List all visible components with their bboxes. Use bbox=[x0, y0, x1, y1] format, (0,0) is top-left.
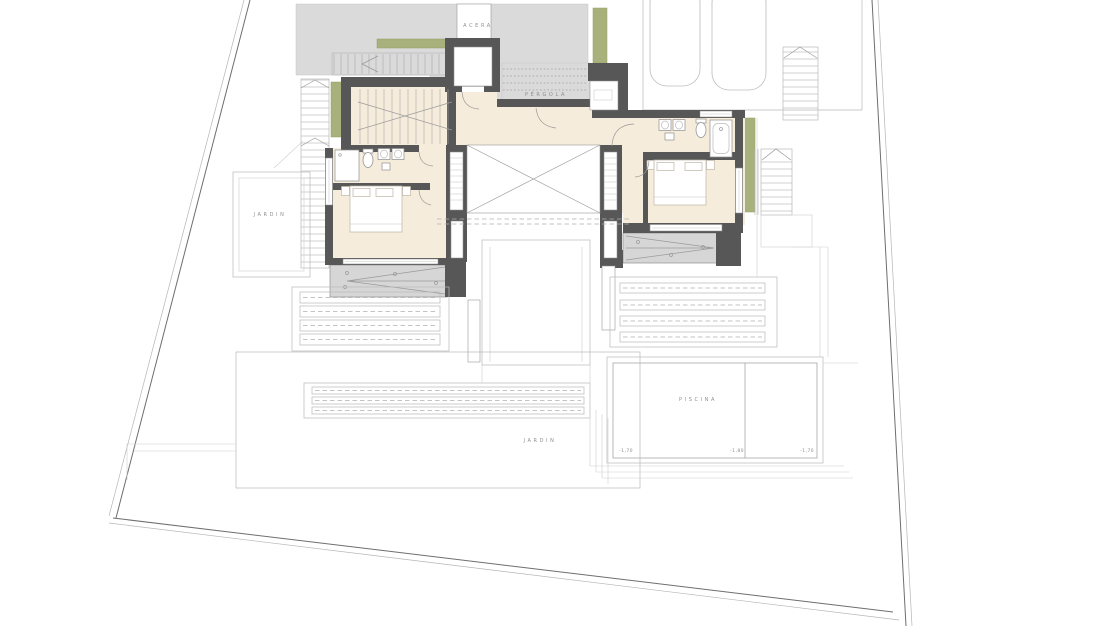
nightstand bbox=[707, 161, 715, 170]
vanity-left bbox=[382, 163, 390, 170]
bedroom-left-furniture bbox=[342, 186, 411, 232]
planter-entry bbox=[593, 8, 607, 63]
court-wall-right bbox=[602, 266, 615, 330]
sidewalk-label: ACERA bbox=[463, 23, 493, 29]
pool: PISCINA -1,70 -1,80 -1,70 bbox=[607, 357, 823, 463]
entry-walkway bbox=[457, 4, 491, 40]
deck-lower bbox=[304, 383, 590, 418]
stair-right-a-outline bbox=[783, 47, 818, 120]
stair-landing bbox=[761, 215, 812, 247]
courtyard bbox=[468, 240, 615, 383]
pillow bbox=[353, 189, 370, 197]
nightstand bbox=[403, 187, 411, 196]
driveway bbox=[643, 0, 862, 110]
car-outline-2 bbox=[712, 0, 766, 90]
entry-tower bbox=[445, 38, 500, 92]
pergola-label: PÉRGOLA bbox=[525, 90, 567, 98]
courtyard-outline bbox=[482, 240, 590, 365]
pool-deck-outline bbox=[607, 357, 823, 463]
deck-right bbox=[610, 277, 777, 347]
court-wall-left bbox=[468, 300, 480, 362]
toilet-left bbox=[363, 153, 373, 168]
stair-left-outline bbox=[301, 79, 329, 268]
pillar-right bbox=[716, 228, 741, 266]
entry-hall-room bbox=[454, 47, 492, 86]
nightstand bbox=[647, 161, 654, 170]
entry-volume bbox=[588, 63, 628, 114]
window-right-bedroom-slider bbox=[650, 225, 722, 232]
entry-door-gap bbox=[462, 87, 484, 93]
window-void-right bbox=[604, 152, 617, 210]
window-court-left bbox=[451, 221, 463, 258]
bedroom-right-furniture bbox=[647, 160, 715, 205]
pergola: PÉRGOLA bbox=[502, 63, 590, 101]
pool-level-left: -1,70 bbox=[619, 448, 633, 454]
pillow bbox=[685, 163, 702, 171]
garden-lower-label: JARDIN bbox=[523, 438, 557, 444]
planter-top bbox=[377, 39, 447, 48]
pool-label: PISCINA bbox=[679, 397, 717, 403]
pool-basin bbox=[613, 363, 817, 458]
pillar-left bbox=[445, 262, 466, 297]
pillow bbox=[657, 163, 674, 171]
stair-right-b-outline bbox=[761, 149, 792, 215]
garden-lower-outline bbox=[236, 352, 640, 488]
pool-level-right: -1,70 bbox=[800, 448, 814, 454]
floor-plan-drawing: ACERA bbox=[0, 0, 1110, 626]
window-void-left bbox=[450, 152, 463, 210]
car-outline-1 bbox=[650, 0, 700, 86]
vanity-right bbox=[665, 133, 674, 140]
pillow bbox=[376, 189, 393, 197]
floor-plan-canvas: ACERA bbox=[0, 0, 1110, 626]
window-court-right bbox=[604, 221, 617, 258]
nightstand bbox=[342, 187, 350, 196]
garden-side-patio bbox=[233, 172, 310, 277]
pool-level-middle: -1,80 bbox=[730, 448, 744, 454]
toilet-right bbox=[696, 123, 706, 138]
garden-side-label: JARDIN bbox=[253, 212, 287, 218]
